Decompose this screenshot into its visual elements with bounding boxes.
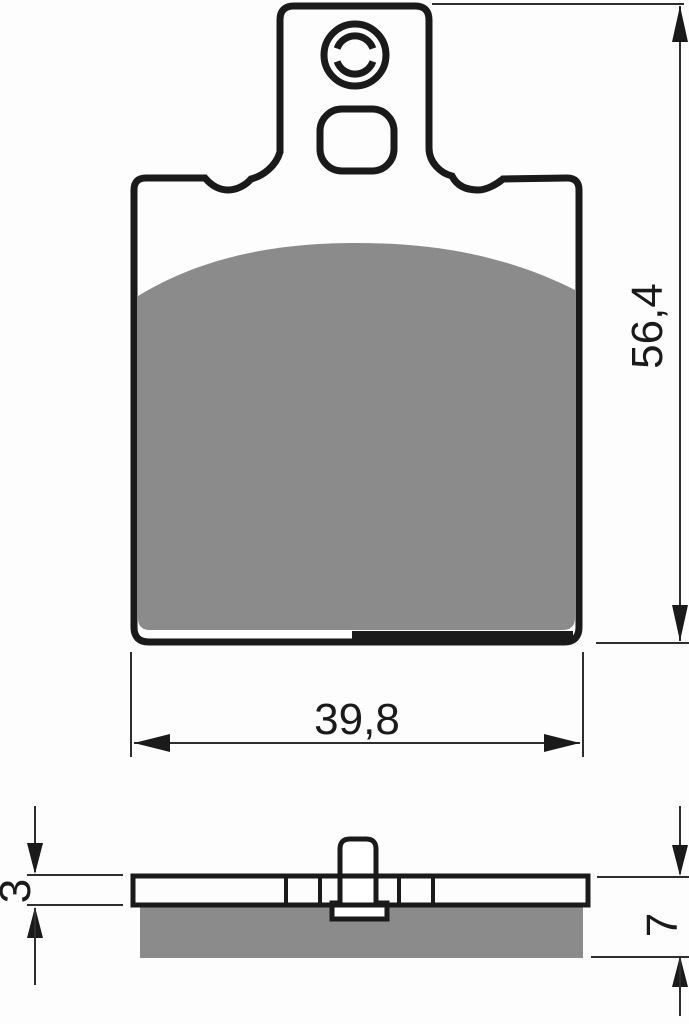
plate-arrow-down <box>27 843 43 874</box>
pin-hole-inner-arc-top <box>337 36 373 49</box>
height-dim-label: 56,4 <box>626 283 670 369</box>
height-arrow-up <box>672 6 688 42</box>
plate-thickness-dimension <box>27 806 123 985</box>
brake-pad-technical-drawing: 56,4 39,8 3 7 <box>0 0 689 1024</box>
total-thickness-label: 7 <box>641 913 685 937</box>
square-hole <box>320 109 394 171</box>
side-view <box>133 839 588 958</box>
friction-material-front <box>138 243 575 630</box>
retaining-pin <box>340 839 376 905</box>
total-arrow-down <box>672 845 688 876</box>
width-dim-label: 39,8 <box>314 698 400 742</box>
plate-thickness-label: 3 <box>0 879 38 903</box>
drawing-canvas <box>0 0 689 1024</box>
width-arrow-left <box>134 734 170 752</box>
pin-hole-inner-arc-bottom <box>337 62 373 75</box>
width-arrow-right <box>544 734 580 752</box>
front-view <box>134 6 579 642</box>
total-thickness-dimension <box>591 806 689 1016</box>
height-arrow-down <box>672 605 688 641</box>
